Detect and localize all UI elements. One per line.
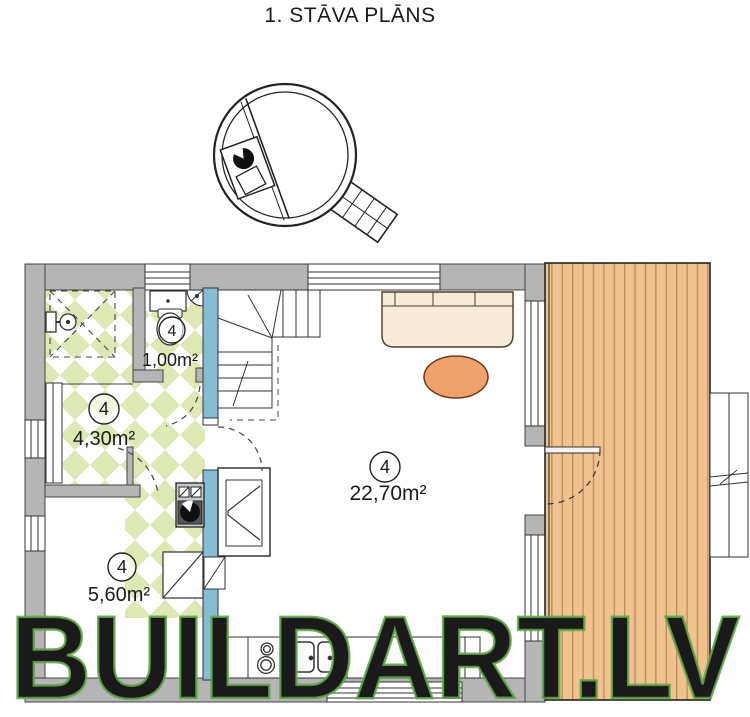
blue-wall-mid bbox=[203, 470, 218, 557]
wall-room-divider bbox=[45, 485, 140, 497]
door-leaf-kitchen bbox=[204, 557, 225, 589]
window-top-bathroom bbox=[145, 264, 190, 290]
room-number: 4 bbox=[168, 323, 177, 340]
room-number: 4 bbox=[380, 457, 390, 477]
blue-wall-upper bbox=[203, 288, 218, 425]
room-number: 4 bbox=[99, 399, 109, 419]
room-number: 4 bbox=[117, 557, 127, 577]
blue-wall-cap bbox=[203, 418, 218, 425]
window-top-living bbox=[308, 264, 440, 290]
wardrobe bbox=[46, 383, 62, 483]
room-area: 1,00m² bbox=[142, 350, 198, 370]
rug-oval bbox=[424, 356, 488, 398]
stove bbox=[176, 483, 204, 527]
deck-door-leaf bbox=[545, 447, 600, 453]
staircase bbox=[218, 290, 320, 420]
top-wall bbox=[25, 264, 545, 290]
window-left-1 bbox=[25, 420, 45, 458]
watermark-text: BUILDART.LV bbox=[10, 592, 740, 717]
fireplace bbox=[218, 468, 270, 556]
right-pier-3 bbox=[525, 515, 545, 535]
room-area: 4,30m² bbox=[73, 428, 136, 450]
sofa bbox=[382, 292, 513, 347]
right-pier-1 bbox=[525, 264, 545, 301]
right-pier-2 bbox=[525, 426, 545, 446]
wall-stub-wc bbox=[196, 368, 203, 382]
window-right-1 bbox=[525, 301, 545, 426]
floor-plan-page: 1. STĀVA PLĀNS bbox=[0, 0, 750, 717]
room-area: 22,70m² bbox=[349, 482, 426, 505]
wall-wc-bottom bbox=[133, 370, 163, 382]
page-title: 1. STĀVA PLĀNS bbox=[264, 4, 435, 27]
floor-plan-canvas: 1. STĀVA PLĀNS bbox=[0, 0, 750, 717]
exterior-steps bbox=[710, 393, 748, 557]
window-left-2 bbox=[25, 516, 45, 551]
door-swing-living bbox=[218, 427, 262, 471]
detail-magnifier bbox=[214, 84, 397, 242]
room-label-living: 4 22,70m² bbox=[349, 452, 426, 505]
stair-outline bbox=[218, 290, 320, 408]
